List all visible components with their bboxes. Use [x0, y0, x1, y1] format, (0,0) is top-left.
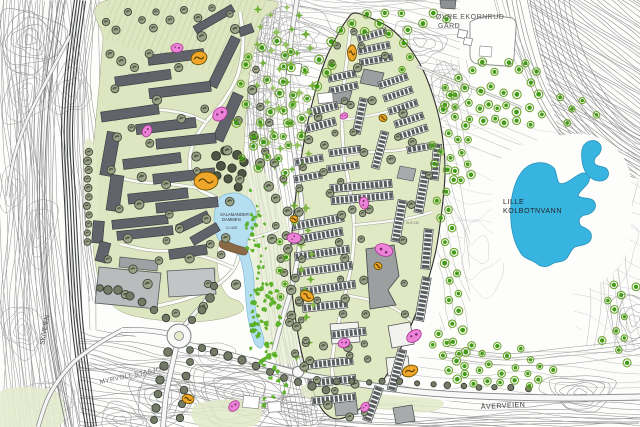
svg-text:HUS 120: HUS 120: [140, 157, 153, 161]
svg-text:HUS 138: HUS 138: [330, 105, 343, 109]
svg-text:HUS 132: HUS 132: [130, 219, 143, 223]
svg-text:HUS 132: HUS 132: [172, 137, 185, 141]
svg-text:HUS 122: HUS 122: [170, 89, 183, 93]
svg-text:HUS 130: HUS 130: [406, 221, 419, 225]
svg-text:HUS 136: HUS 136: [152, 121, 165, 125]
svg-text:C=120: C=120: [226, 226, 237, 230]
svg-text:HUS 130: HUS 130: [118, 109, 131, 113]
svg-text:HUS 116: HUS 116: [322, 251, 335, 255]
svg-text:HUS 136: HUS 136: [368, 185, 381, 189]
svg-text:GÅRD: GÅRD: [438, 21, 460, 30]
svg-text:HUS 115: HUS 115: [160, 52, 173, 56]
svg-text:HUS 126: HUS 126: [170, 173, 183, 177]
svg-text:LILLE: LILLE: [503, 199, 524, 206]
svg-text:KOLBOTNVANN: KOLBOTNVANN: [503, 208, 562, 215]
svg-text:HUS 121: HUS 121: [175, 203, 188, 207]
svg-text:HUS 126: HUS 126: [348, 75, 361, 79]
svg-text:HUS 124: HUS 124: [334, 287, 347, 291]
svg-text:HUS 104: HUS 104: [128, 73, 141, 77]
svg-text:ØVRE EKORNRUD: ØVRE EKORNRUD: [436, 14, 504, 21]
svg-text:HUS 122: HUS 122: [146, 193, 159, 197]
svg-text:DAMMEN: DAMMEN: [222, 217, 241, 222]
